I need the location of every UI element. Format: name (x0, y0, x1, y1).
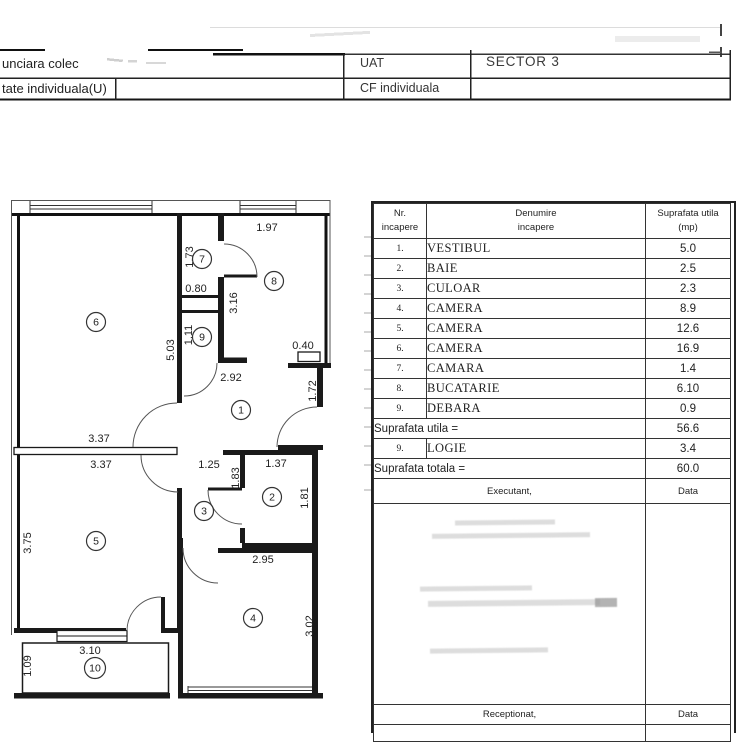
row-area: 2.3 (646, 279, 731, 299)
dimension-label: 3.37 (88, 433, 109, 445)
row-top-border (213, 53, 345, 55)
room-number-text: 9 (199, 332, 205, 344)
dimension-label: 1.81 (299, 487, 311, 508)
receptionat-label: Receptionat, (374, 705, 646, 725)
interior-walls (14, 213, 331, 699)
areas-table: Nr. incapere Denumire incapere Suprafata… (371, 201, 736, 733)
subtotal-value: 56.6 (646, 419, 731, 439)
dimension-label: 3.02 (304, 615, 316, 636)
row-area: 5.0 (646, 239, 731, 259)
wall (218, 358, 247, 364)
table-row: 2. BAIE 2.5 (374, 259, 731, 279)
row-name: CAMERA (427, 339, 646, 359)
cut-off-row (374, 725, 731, 742)
room-number-4: 4 (244, 609, 263, 628)
row-nr: 5. (374, 319, 427, 339)
room-number-9: 9 (193, 328, 212, 347)
table-row: 6. CAMERA 16.9 (374, 339, 731, 359)
col-header-nr: Nr. incapere (374, 204, 427, 239)
row-name: CAMARA (427, 359, 646, 379)
row-area: 3.4 (646, 439, 731, 459)
row-name: LOGIE (427, 439, 646, 459)
room-numbers: 6 7 8 9 1 5 3 2 4 10 (85, 250, 284, 679)
wall-line (325, 213, 328, 365)
row-name: DEBARA (427, 399, 646, 419)
room-number-6: 6 (87, 313, 106, 332)
wall (182, 310, 218, 313)
door-arc (141, 455, 178, 492)
room-number-2: 2 (263, 488, 282, 507)
row-divider (0, 78, 731, 79)
table-row: 8. BUCATARIE 6.10 (374, 379, 731, 399)
row-name: CULOAR (427, 279, 646, 299)
dimension-label: 3.10 (79, 645, 100, 657)
hollow-walls (14, 352, 320, 693)
receptionat-row: Receptionat, Data (374, 705, 731, 725)
row-nr: 3. (374, 279, 427, 299)
handwriting-smudge (128, 60, 137, 63)
door-arc (184, 363, 217, 396)
row-area: 1.4 (646, 359, 731, 379)
wall (218, 213, 224, 241)
column-divider (115, 78, 116, 100)
dimension-label: 2.92 (220, 372, 241, 384)
row-area: 16.9 (646, 339, 731, 359)
row-nr: 4. (374, 299, 427, 319)
door-arc (183, 548, 218, 583)
room-number-3: 3 (195, 502, 214, 521)
handwriting-smudge (107, 58, 123, 62)
door-leaf (161, 597, 165, 631)
table-right-border (730, 50, 732, 100)
handwriting-smudge (146, 62, 166, 64)
line-fragment (148, 49, 243, 51)
room-number-text: 2 (269, 492, 275, 504)
col-header-line: Nr. (394, 208, 406, 219)
dimension-label: 3.37 (90, 459, 111, 471)
cut-off-cell (646, 725, 731, 742)
data-label: Data (646, 479, 731, 504)
col-header-line: Suprafata utila (657, 208, 718, 219)
wall (218, 548, 312, 553)
column-divider (470, 50, 471, 100)
wall (177, 488, 182, 633)
total-row: Suprafata totala = 60.0 (374, 459, 731, 479)
subtotal-label: Suprafata utila = (374, 419, 646, 439)
erased-line (210, 27, 721, 28)
wall-line (17, 213, 20, 630)
room-number-text: 3 (201, 506, 207, 518)
header-row1-left-label: unciara colec (2, 56, 79, 71)
wall (242, 543, 317, 548)
room-number-text: 8 (271, 276, 277, 288)
row-name: VESTIBUL (427, 239, 646, 259)
wall (14, 693, 170, 699)
wall (182, 295, 218, 298)
room-number-1: 1 (232, 401, 251, 420)
col-header-denumire: Denumire incapere (427, 204, 646, 239)
dimension-label: 3.75 (22, 532, 34, 553)
data-label: Data (646, 705, 731, 725)
dimension-label: 3.16 (228, 292, 240, 313)
partition-wall (14, 448, 177, 455)
table-header-row: Nr. incapere Denumire incapere Suprafata… (374, 204, 731, 239)
room-number-text: 4 (250, 613, 256, 625)
signature-smudge (595, 598, 617, 607)
dimension-label: 1.97 (256, 222, 277, 234)
duct-box (298, 352, 320, 362)
total-value: 60.0 (646, 459, 731, 479)
row-nr: 9. (374, 399, 427, 419)
row-area: 8.9 (646, 299, 731, 319)
dimension-label: 1.09 (22, 655, 34, 676)
areas-table-grid: Nr. incapere Denumire incapere Suprafata… (373, 203, 731, 742)
data-box (646, 504, 731, 705)
door-arc (133, 403, 177, 447)
wall-line (11, 200, 331, 201)
wall-line (12, 213, 331, 216)
row-area: 6.10 (646, 379, 731, 399)
signature-smudge (455, 519, 555, 525)
door-arc (224, 244, 257, 277)
dimension-label: 0.80 (185, 283, 206, 295)
table-row: 3. CULOAR 2.3 (374, 279, 731, 299)
door-arc (127, 597, 161, 631)
table-row-logie: 9. LOGIE 3.4 (374, 439, 731, 459)
uat-value: SECTOR 3 (486, 54, 560, 69)
wall (223, 450, 317, 455)
row-area: 12.6 (646, 319, 731, 339)
faint-stamp-smudge (615, 36, 700, 42)
table-row: 9. DEBARA 0.9 (374, 399, 731, 419)
row-area: 2.5 (646, 259, 731, 279)
wall (240, 528, 245, 543)
table-row: 1. VESTIBUL 5.0 (374, 239, 731, 259)
room-number-text: 1 (238, 405, 244, 417)
row-nr: 1. (374, 239, 427, 259)
col-header-line: incapere (382, 222, 418, 233)
dimension-label: 1.25 (198, 459, 219, 471)
header-row2-left-label: tate individuala(U) (2, 81, 107, 96)
erased-border-tick (720, 24, 722, 36)
room-number-text: 6 (93, 317, 99, 329)
row-nr: 9. (374, 439, 427, 459)
room-number-10: 10 (85, 658, 106, 679)
dimension-label: 2.95 (252, 554, 273, 566)
dimension-label: 5.03 (165, 339, 177, 360)
executant-label: Executant, (374, 479, 646, 504)
dimension-label: 0.40 (292, 340, 313, 352)
total-label: Suprafata totala = (374, 459, 646, 479)
wall (312, 450, 318, 698)
subtotal-row: Suprafata utila = 56.6 (374, 419, 731, 439)
door-leaf (224, 275, 257, 278)
room-number-text: 10 (89, 663, 101, 675)
wall (178, 693, 323, 699)
col-header-line: (mp) (678, 222, 698, 233)
wall (177, 213, 182, 403)
header-text: unciara colec tate individuala(U) UAT SE… (2, 54, 560, 96)
dimension-label: 1.83 (230, 467, 242, 488)
row-name: CAMERA (427, 299, 646, 319)
col-header-line: incapere (518, 222, 554, 233)
wall (218, 277, 224, 362)
row-nr: 6. (374, 339, 427, 359)
dimension-label: 1.37 (265, 458, 286, 470)
wall (278, 445, 323, 450)
room-number-text: 5 (93, 536, 99, 548)
row-name: BAIE (427, 259, 646, 279)
executant-row: Executant, Data (374, 479, 731, 504)
room-number-5: 5 (87, 532, 106, 551)
wall-line (11, 200, 12, 635)
table-row: 7. CAMARA 1.4 (374, 359, 731, 379)
row-nr: 2. (374, 259, 427, 279)
column-divider (343, 54, 344, 100)
col-header-line: Denumire (515, 208, 556, 219)
col-header-suprafata: Suprafata utila (mp) (646, 204, 731, 239)
row-nr: 7. (374, 359, 427, 379)
cf-label: CF individuala (360, 81, 439, 95)
wall-line (329, 200, 330, 366)
uat-label: UAT (360, 56, 384, 70)
scanned-document-page: { "header": { "row1_left": "unciara cole… (0, 0, 739, 720)
row-name: BUCATARIE (427, 379, 646, 399)
door-arc (277, 407, 317, 447)
table-row: 4. CAMERA 8.9 (374, 299, 731, 319)
room-number-text: 7 (199, 254, 205, 266)
erased-line (709, 52, 722, 54)
row-area: 0.9 (646, 399, 731, 419)
outer-walls (11, 200, 331, 635)
row-name: CAMERA (427, 319, 646, 339)
row-nr: 8. (374, 379, 427, 399)
line-fragment (0, 49, 45, 51)
room-number-8: 8 (265, 272, 284, 291)
dimension-label: 1.72 (307, 380, 319, 401)
table-row: 5. CAMERA 12.6 (374, 319, 731, 339)
cut-off-cell (374, 725, 646, 742)
handwriting-smudge (310, 31, 370, 37)
wall (288, 363, 331, 368)
table-bottom-border (0, 99, 731, 101)
